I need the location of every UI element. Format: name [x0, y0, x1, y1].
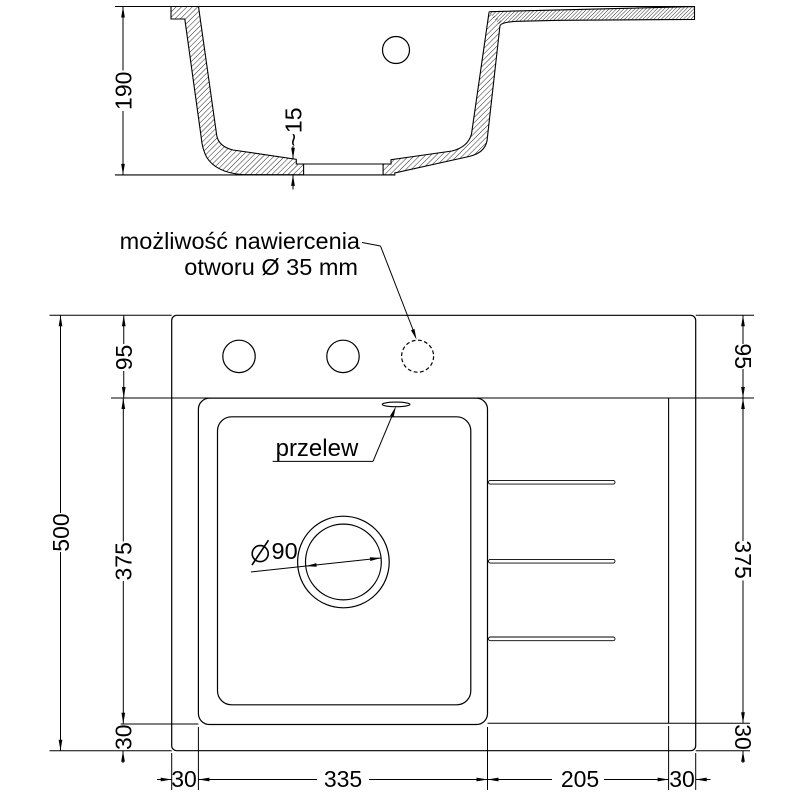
svg-text:90: 90 — [272, 538, 298, 564]
svg-text:30: 30 — [730, 724, 756, 750]
svg-text:375: 375 — [730, 540, 756, 578]
svg-text:30: 30 — [171, 766, 197, 792]
svg-text:30: 30 — [669, 766, 695, 792]
svg-text:~15: ~15 — [280, 107, 306, 146]
svg-text:375: 375 — [111, 542, 137, 580]
svg-text:przelew: przelew — [276, 435, 359, 462]
svg-text:95: 95 — [730, 343, 756, 369]
svg-text:30: 30 — [110, 724, 136, 750]
svg-text:95: 95 — [111, 345, 137, 371]
svg-text:500: 500 — [48, 513, 74, 551]
svg-text:190: 190 — [110, 72, 136, 110]
svg-text:możliwość nawiercenia: możliwość nawiercenia — [120, 228, 361, 254]
svg-text:205: 205 — [561, 766, 599, 792]
svg-text:335: 335 — [324, 766, 362, 792]
svg-text:otworu Ø 35 mm: otworu Ø 35 mm — [184, 254, 358, 280]
